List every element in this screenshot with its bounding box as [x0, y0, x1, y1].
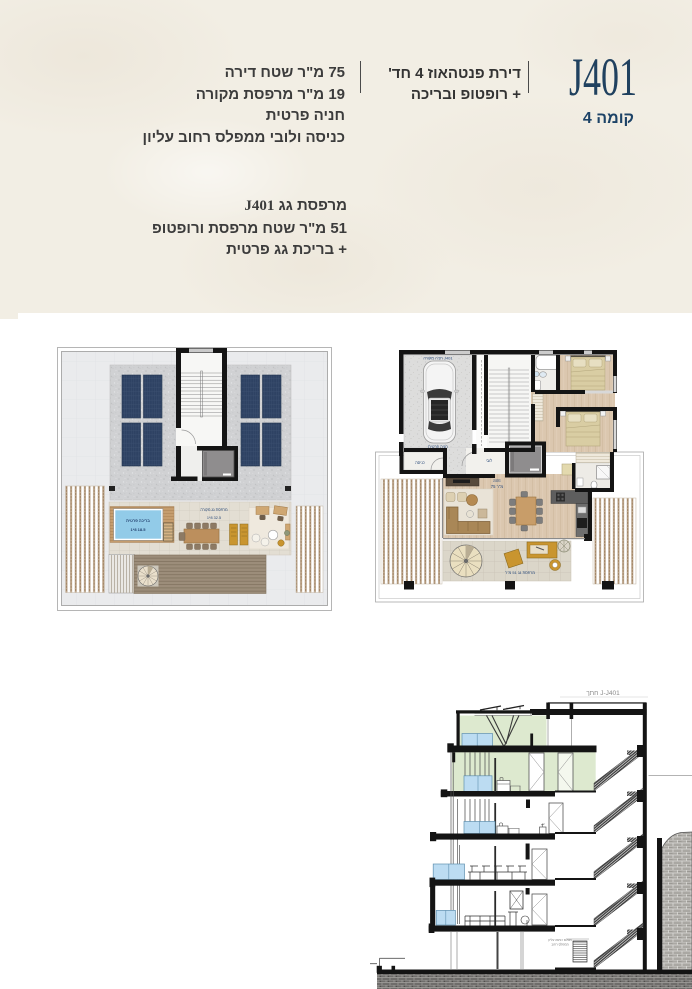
svg-text:בריכה פרטית: בריכה פרטית	[126, 518, 150, 523]
svg-text:מפלס כניסה עליון: מפלס כניסה עליון	[548, 938, 571, 942]
svg-text:חתך J-J401: חתך J-J401	[586, 690, 620, 697]
svg-text:כניסה: כניסה	[415, 460, 425, 465]
svg-text:1*8 32.5: 1*8 32.5	[207, 516, 221, 520]
svg-text:מרפסת גג מקורה: מרפסת גג מקורה	[200, 508, 228, 512]
svg-text:חניה פרטית: חניה פרטית	[428, 444, 448, 449]
svg-text:75 מ"ר: 75 מ"ר	[491, 484, 504, 489]
svg-text:ממפלס רחוב: ממפלס רחוב	[551, 943, 568, 947]
svg-text:J401: J401	[493, 478, 501, 483]
svg-text:לובי: לובי	[486, 458, 493, 463]
svg-text:חניה מקורה J401: חניה מקורה J401	[423, 356, 453, 361]
svg-text:1*8 18.5: 1*8 18.5	[131, 527, 147, 532]
svg-text:מרפסת גג 51 מ"ר: מרפסת גג 51 מ"ר	[505, 570, 535, 575]
